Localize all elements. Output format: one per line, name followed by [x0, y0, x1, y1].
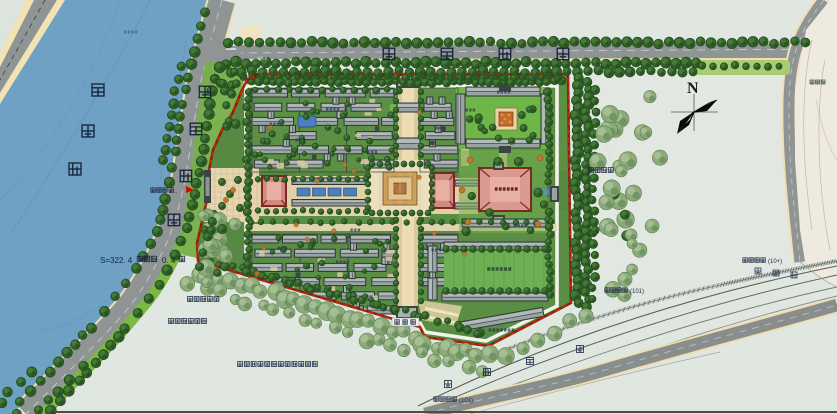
svg-text:(101): (101) [630, 289, 644, 295]
svg-text:..: .. [174, 189, 178, 195]
svg-text:S=322. 4: S=322. 4 [100, 256, 133, 265]
svg-text:0. 4: 0. 4 [162, 256, 176, 265]
svg-text:(10+): (10+) [768, 259, 782, 265]
svg-text:N: N [687, 80, 699, 97]
svg-text:(101): (101) [459, 398, 473, 404]
